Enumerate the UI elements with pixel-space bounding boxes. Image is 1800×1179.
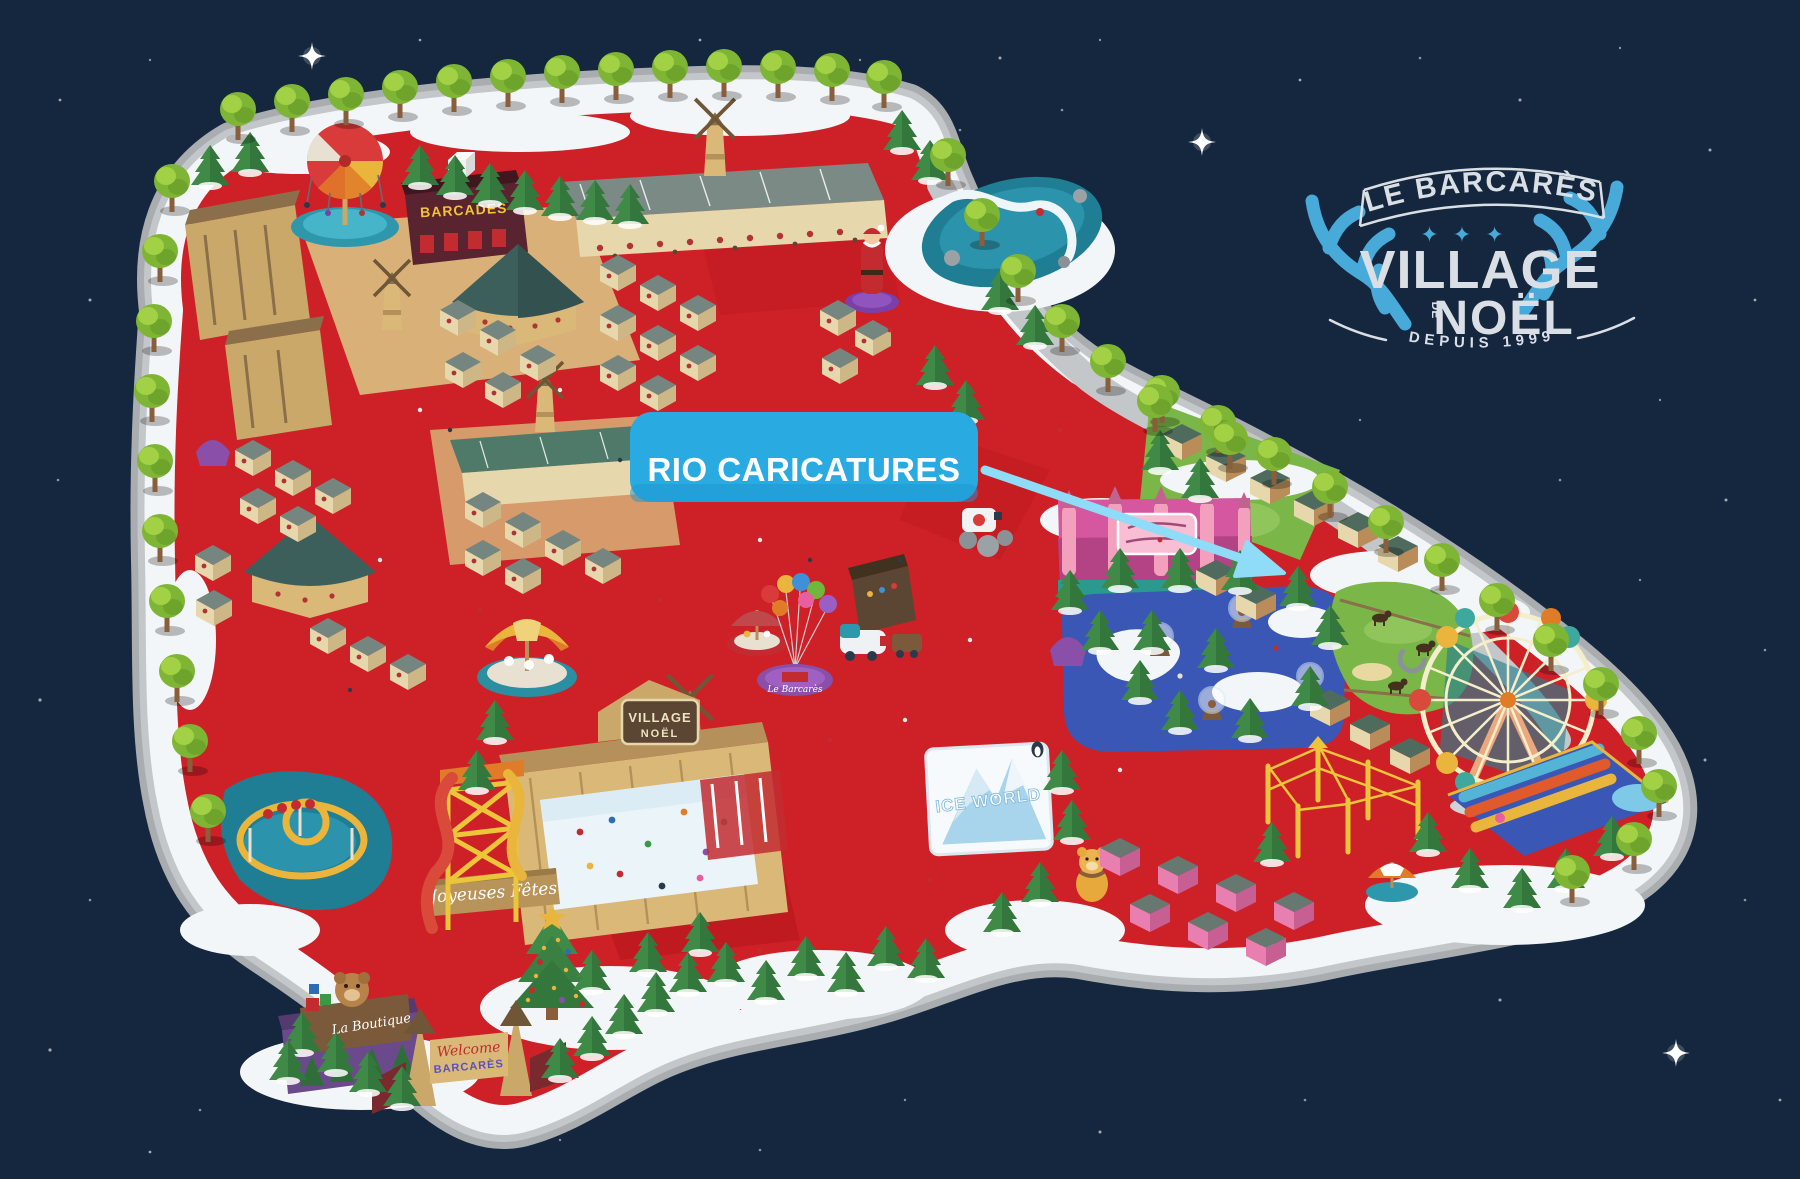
lazy-river: [1062, 586, 1346, 752]
ice-world-billboard: ICE WORLD: [925, 741, 1052, 855]
bright-star-icon: [1188, 128, 1216, 156]
bright-star-icon: [1662, 1039, 1690, 1067]
callout-label: RIO CARICATURES: [647, 451, 960, 488]
rink-sign-village: VILLAGE: [628, 710, 691, 725]
logo-title: VILLAGE: [1359, 240, 1600, 300]
rink-sign-noel: NOËL: [641, 727, 680, 740]
village-noel-map-screen: BARCADES: [0, 0, 1800, 1179]
village-noel-logo: LE BARCARÈS ✦ ✦ ✦ VILLAGE DE NOËL DEPUIS…: [1312, 166, 1634, 352]
bright-star-icon: [298, 42, 326, 70]
balloon-stand-sign: Le Barcarès: [766, 684, 822, 695]
